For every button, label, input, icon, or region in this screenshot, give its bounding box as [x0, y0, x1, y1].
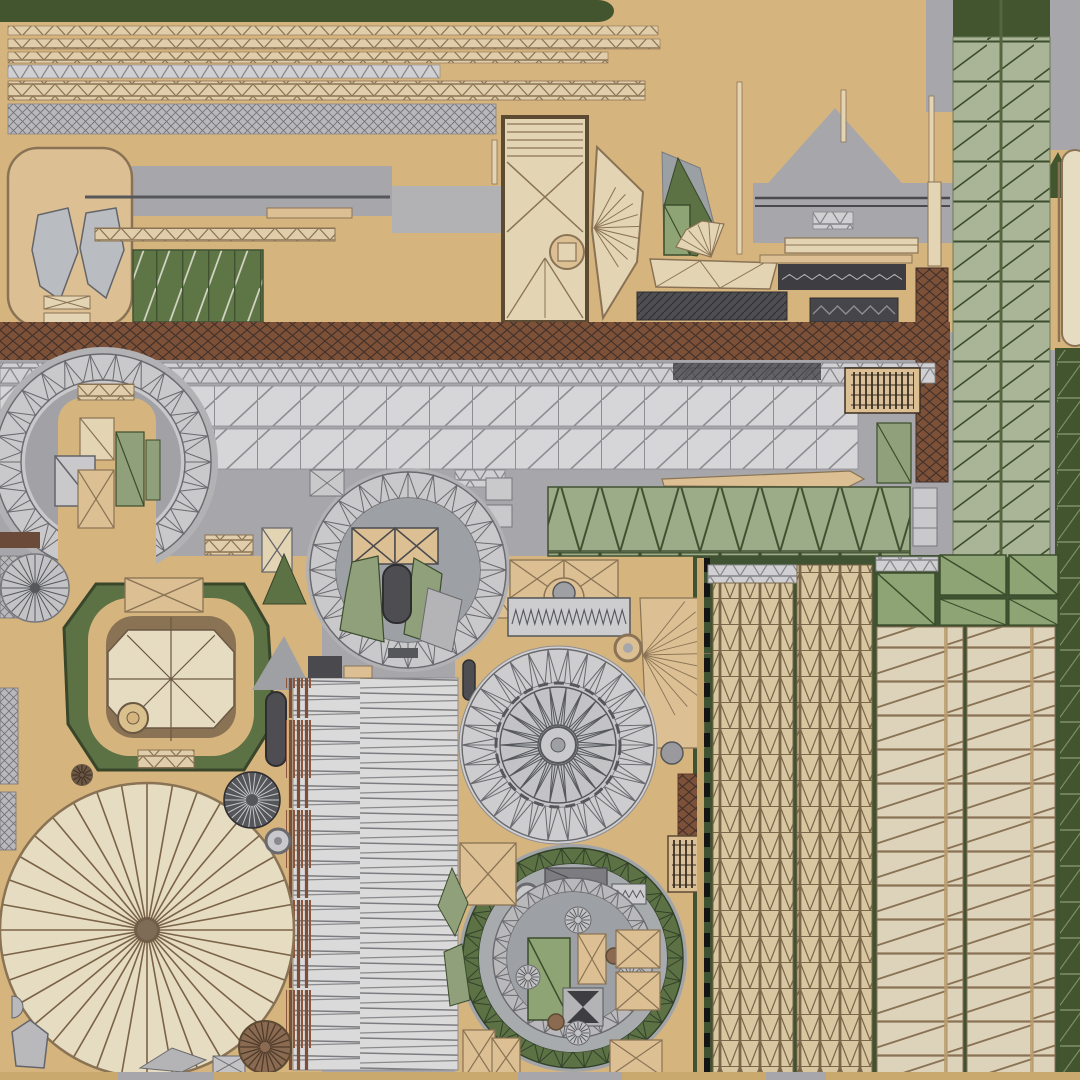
gray-box-bottom [213, 1056, 245, 1074]
octagon-top-box [125, 578, 203, 612]
dome-capsule [1062, 150, 1080, 346]
dark-capsule [266, 692, 286, 766]
panel-top-tan-cap [344, 666, 372, 678]
brown-lattice-inner [672, 840, 696, 888]
green-top-strip-end [582, 0, 614, 22]
zigzag-patch-right [813, 212, 853, 229]
spring-box [508, 598, 630, 636]
tan-box-w [460, 843, 516, 905]
rust-bars-left [0, 532, 40, 548]
gray-hatch-strip-r [876, 557, 938, 571]
green-cap-col1 [953, 0, 1000, 37]
right-edge-ladder-overlay [1057, 350, 1080, 1080]
truss-strip-6-dense [8, 104, 496, 134]
striped-panel [293, 678, 458, 1070]
col3-ladder [877, 627, 963, 1073]
tan-lattice-inner [851, 372, 914, 409]
sage-col-1 [953, 37, 1000, 557]
seat-bar-2 [44, 313, 90, 323]
boat-bar [760, 255, 912, 263]
uv-texture-atlas-canvas [0, 0, 1080, 1080]
gray-box-tl-b [310, 470, 344, 496]
tan-bar-small [267, 208, 352, 218]
sage-panel-long [548, 487, 910, 556]
cream-strip-right [928, 182, 941, 266]
gear-center [551, 738, 565, 752]
striped-panel-rust-edge [286, 678, 312, 1070]
tent-donut-hole [127, 712, 139, 724]
truss-strip-3 [8, 52, 608, 63]
footer-gray-3 [766, 1072, 826, 1080]
col2-zigzag [797, 565, 872, 1073]
truss-strip-4 [8, 65, 440, 78]
tan-truss-box-mid [205, 535, 253, 555]
truss-strip-2 [8, 39, 660, 49]
ring-a-truss-cap [78, 384, 134, 400]
col1-zigzag [713, 583, 793, 1073]
pole-4 [492, 140, 497, 184]
donut-gray-hole [274, 837, 282, 845]
green-panel-upper-left [133, 250, 263, 322]
radial-disc-hub [30, 583, 40, 593]
donut-mid-hole [623, 643, 633, 653]
big-roof-hub [134, 917, 160, 943]
ring-b-tan-box-r [395, 528, 438, 564]
pole-3 [841, 90, 846, 142]
ring-b-capsule [383, 565, 411, 623]
ring-a-sage-2 [146, 440, 160, 500]
tan-box-e2 [616, 972, 660, 1010]
gray-strip-edge-3 [0, 792, 16, 850]
panel-top-dark-box [308, 656, 342, 678]
truss-strip-5 [8, 81, 645, 100]
tan-box-se [610, 1040, 662, 1076]
octagon-bottom-truss [138, 750, 194, 768]
ring-a-cream-box [80, 418, 114, 460]
dark-truss-box [810, 298, 898, 322]
mid-truss-dark-overlay [673, 363, 821, 380]
ring-f-donut-2 [548, 1014, 564, 1030]
ring-f-tan-box [578, 934, 606, 984]
green-box-c1 [1009, 555, 1058, 595]
gray-patch-right-top [926, 0, 953, 112]
green-box-b1 [940, 555, 1006, 595]
green-box-c2 [1009, 599, 1058, 625]
col1-cap [708, 565, 798, 583]
dark-hatch-strip [637, 292, 787, 320]
gray-strip-edge-2 [0, 688, 18, 784]
truss-strip-1 [8, 26, 658, 35]
sage-col-2 [1002, 37, 1050, 557]
green-box-b2 [940, 599, 1006, 625]
green-cap-col2 [1002, 0, 1050, 37]
atlas-shapes [0, 0, 1080, 1080]
green-box-a [877, 573, 935, 625]
col4-ladder [967, 627, 1055, 1073]
tan-pole-edge [697, 558, 704, 1072]
ring-a-tan-box2 [78, 470, 114, 528]
gray-patch-center [392, 186, 510, 233]
tan-box-e1 [616, 930, 660, 968]
green-top-strip [0, 0, 598, 22]
charcoal-box [778, 264, 906, 290]
small-sq-1 [486, 478, 512, 500]
teardrop [661, 742, 683, 764]
footer-gray-2 [518, 1072, 622, 1080]
uv-texture-atlas [0, 0, 1080, 1080]
gray-squares-col [913, 488, 937, 546]
dark-bar-b [388, 648, 418, 658]
footer-gray-1 [118, 1072, 214, 1080]
gray-patch-left [130, 166, 392, 216]
trapezoid-bar [650, 259, 777, 289]
seat-bar-1 [44, 296, 90, 309]
xbrace-square [558, 243, 576, 261]
pole-1 [737, 82, 742, 254]
tan-bar-dashed [95, 228, 335, 241]
